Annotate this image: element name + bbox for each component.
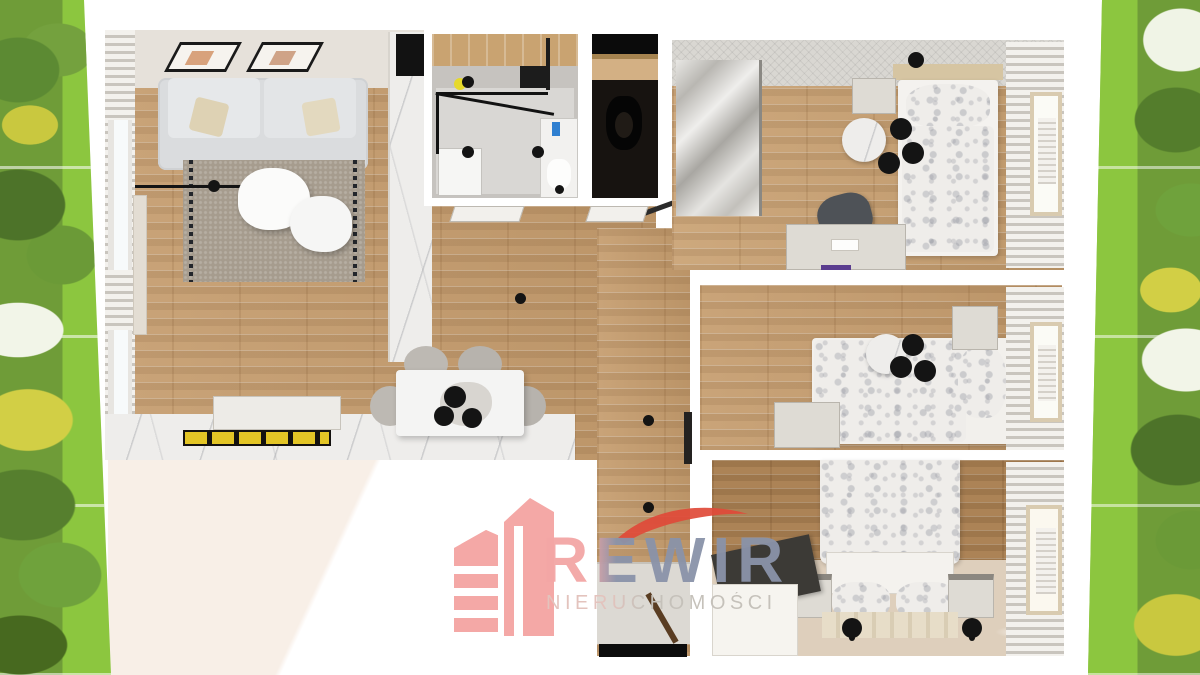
shower-glass-side [436,92,439,154]
stool-2 [902,142,924,164]
plate-2 [434,406,454,426]
bath-spot-1 [462,76,474,88]
bed3-duvet [820,460,960,564]
spotlight-1 [515,293,526,304]
bedroom1-nightstand [852,78,896,114]
yellow-runner-rug [183,430,331,446]
entrance-door [599,644,687,657]
bedroom2-bench [774,402,840,448]
coffee-table-2 [290,196,352,252]
detergent-bottle [552,122,560,136]
dining-table [396,370,524,436]
toilet [606,96,642,150]
stool-3 [878,152,900,174]
wc-wood-shelf [592,54,658,80]
open-door-leaf-bath-2 [585,206,648,222]
bedroom1-bed [898,80,998,256]
brand-subtitle: NIERUCHOMOŚCI [546,592,777,614]
radiator-panel [133,195,147,335]
bed2-pouf-3 [914,360,936,382]
sofa-pillow-2 [301,97,340,136]
bathroom-wood-lintel [432,34,578,66]
bed2-pouf-1 [902,334,924,356]
sofa [158,78,368,170]
headboard-shelf [893,64,1003,80]
shower-pipe [546,38,550,90]
ball-lamp-1 [842,618,862,638]
toilet-bowl [615,112,633,138]
rug-stripe-right [353,160,357,282]
desk-book [821,265,851,270]
bedroom1-desk [786,224,906,270]
bath-spot-2 [462,146,474,158]
stool-1 [890,118,912,140]
picture-art-1 [185,51,214,65]
bathroom [432,34,578,198]
bed1-reading-lamp [908,52,924,68]
bed2-pillow [958,346,1006,418]
real-estate-floorplan-image: REWIR NIERUCHOMOŚCI [0,0,1200,675]
keyboard [831,239,859,251]
brand-wordmark: REWIR [542,528,790,592]
bedroom2-nightstand [952,306,998,350]
plate-3 [462,408,482,428]
sink-faucet [555,185,564,194]
bedroom2-radiator [1038,345,1056,401]
washing-machine [438,148,482,196]
wc-top-strip [592,34,658,54]
ball-lamp-2 [962,618,982,638]
rug-stripe-left [189,160,193,282]
hall-mirror [684,412,692,464]
park-photo-strip-right [1086,0,1200,675]
bed1-pillow [906,84,990,128]
picture-art-2 [269,51,296,65]
open-door-leaf-bath-1 [449,206,524,222]
shower-head [520,66,546,88]
sideboard [213,396,341,430]
bedroom3-radiator [1036,528,1056,594]
bath-spot-3 [532,146,544,158]
spotlight-3 [643,415,654,426]
bed2-pouf-2 [890,356,912,378]
bedroom1-radiator [1038,118,1056,184]
living-window-1 [108,120,132,270]
icon-tower-right-slit [514,526,523,636]
plate-1 [444,386,466,408]
icon-tower-left [454,530,504,636]
wc [592,34,658,198]
floor-lamp-joint [208,180,220,192]
bedroom1-wardrobe [676,60,762,216]
